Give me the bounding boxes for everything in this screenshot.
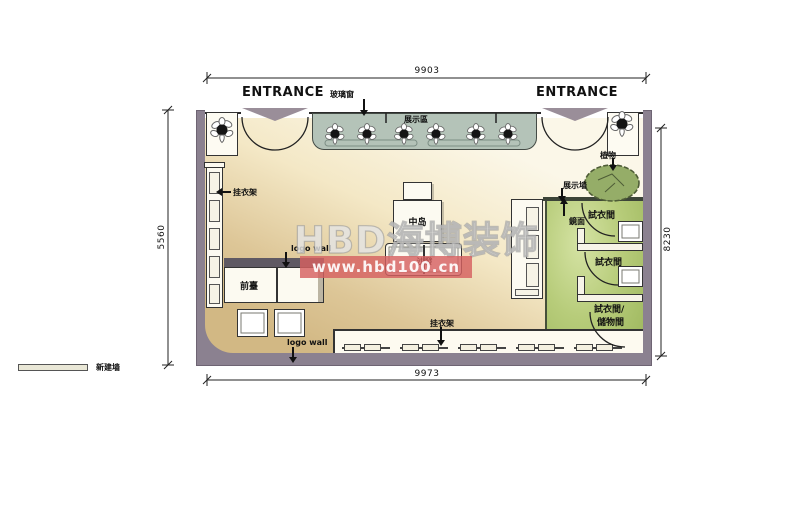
rack-left-label: 挂衣架	[233, 187, 257, 198]
watermark-url-band: www.hbd100.cn	[300, 256, 472, 278]
display-area-label: 展示區	[404, 114, 428, 125]
dimension-top-value: 9903	[407, 66, 447, 76]
fitting-room-3-label-line2: 儲物間	[597, 315, 624, 328]
fitting-room-3-label-line1: 試衣間/	[594, 302, 624, 315]
partition-wall	[577, 294, 643, 302]
corner-display-niche-left	[206, 112, 238, 156]
plant-label: 植物	[600, 150, 616, 161]
hanger-unit	[458, 336, 506, 349]
stool	[237, 309, 268, 337]
legend-new-wall-swatch	[18, 364, 88, 371]
arrow-down-icon	[612, 158, 614, 166]
dimension-bottom-value: 9973	[407, 369, 447, 379]
center-island-top	[403, 182, 432, 200]
arrow-down-icon	[561, 188, 563, 197]
legend-new-wall-label: 新建墙	[96, 362, 120, 373]
arrow-down-icon	[363, 99, 365, 111]
display-wall-label: 展示墙	[563, 180, 587, 191]
arrow-down-icon	[292, 347, 294, 358]
rack-slot	[209, 228, 220, 250]
rack-bottom-label: 挂衣架	[430, 318, 454, 329]
watermark-url: www.hbd100.cn	[312, 258, 460, 276]
fitting-room-2-label: 試衣間	[595, 255, 622, 268]
arrow-up-icon	[563, 203, 565, 216]
arrow-left-icon	[221, 191, 231, 193]
arrow-down-icon	[285, 252, 287, 263]
entrance-canopy-left	[242, 108, 308, 121]
hanger-unit	[342, 336, 390, 349]
desk-divider	[276, 268, 278, 302]
stool	[274, 309, 305, 337]
partition-wall	[577, 243, 643, 251]
entrance-label-left: ENTRANCE	[242, 85, 317, 100]
glass-window-label: 玻璃窗	[330, 89, 354, 100]
dimension-left-value: 5560	[157, 207, 167, 267]
front-desk-label: 前臺	[240, 279, 258, 292]
hanger-unit	[516, 336, 564, 349]
fitting-room-1-label: 試衣間	[588, 208, 615, 221]
logo-wall-bottom-label: logo wall	[287, 338, 328, 347]
shelf-slot	[515, 289, 539, 296]
hanger-unit	[574, 336, 622, 349]
arrow-down-icon	[440, 327, 442, 341]
rack-slot	[209, 200, 220, 222]
entrance-canopy-right	[542, 108, 608, 121]
fitting-stool	[618, 266, 643, 287]
dimension-right-value: 8230	[663, 209, 673, 269]
rack-slot	[209, 284, 220, 304]
entrance-label-right: ENTRANCE	[536, 85, 611, 100]
floor-plan-canvas: ENTRANCE ENTRANCE 9903 9973 5560 8230 玻璃…	[0, 0, 800, 508]
shelf-slot	[526, 263, 539, 287]
mirror-label: 鏡面	[569, 216, 585, 227]
fitting-stool	[618, 221, 643, 242]
rack-slot	[209, 256, 220, 278]
